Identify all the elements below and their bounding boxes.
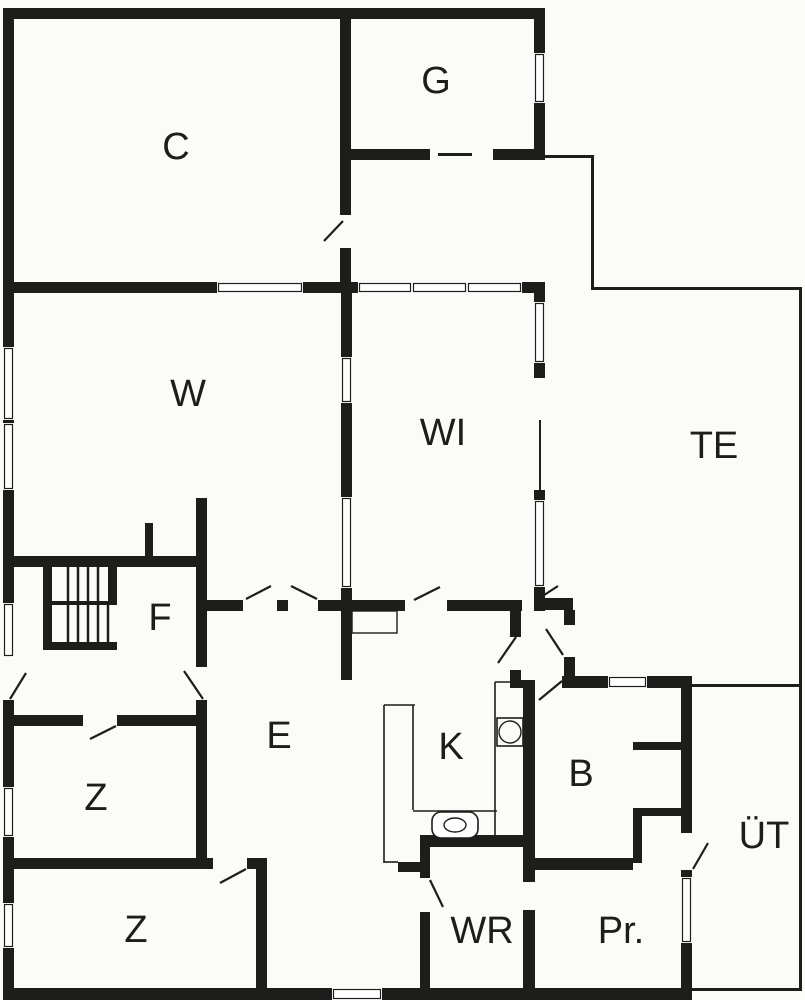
door-opening bbox=[243, 600, 277, 611]
room-label-c: C bbox=[162, 126, 189, 168]
stairs-wall bbox=[108, 565, 117, 605]
wall bbox=[398, 862, 420, 872]
stairs-wall bbox=[43, 642, 117, 650]
terrace-boundary-line bbox=[692, 684, 802, 687]
wall bbox=[564, 610, 575, 625]
door-opening bbox=[405, 600, 447, 611]
room-label-z2: Z bbox=[124, 909, 147, 951]
wall bbox=[633, 808, 642, 863]
terrace-boundary-line bbox=[545, 155, 593, 158]
room-label-k: K bbox=[438, 726, 463, 768]
wall bbox=[3, 8, 545, 19]
stairs-wall bbox=[43, 565, 52, 650]
room-label-te: TE bbox=[690, 425, 739, 467]
terrace-boundary-line bbox=[591, 155, 594, 289]
wall bbox=[681, 676, 692, 833]
room-label-ut: ÜT bbox=[739, 815, 790, 857]
terrace-boundary-line bbox=[591, 287, 802, 290]
door-opening bbox=[340, 215, 351, 248]
room-label-b: B bbox=[568, 753, 593, 795]
room-label-wr: WR bbox=[450, 910, 513, 952]
room-label-wi: WI bbox=[420, 412, 466, 454]
terrace-boundary-line bbox=[799, 287, 802, 990]
wall bbox=[3, 8, 14, 1000]
sink-icon bbox=[432, 812, 478, 838]
room-label-e: E bbox=[266, 715, 291, 757]
door-opening bbox=[288, 600, 318, 611]
floor-plan-canvas: CGWWITEFEZZKBWRPr.ÜT bbox=[0, 0, 805, 1000]
room-label-f: F bbox=[148, 597, 171, 639]
room-label-w: W bbox=[170, 373, 206, 415]
wall bbox=[510, 670, 521, 680]
wall bbox=[145, 523, 153, 556]
door-opening bbox=[213, 858, 247, 869]
terrace-boundary-line bbox=[438, 153, 472, 156]
floor-plan: CGWWITEFEZZKBWRPr.ÜT bbox=[0, 0, 805, 1000]
terrace-boundary-line bbox=[539, 420, 541, 490]
stairs-wall bbox=[52, 601, 117, 605]
door-opening bbox=[523, 882, 535, 910]
room-label-g: G bbox=[421, 60, 451, 102]
door-opening bbox=[83, 715, 117, 726]
wall bbox=[341, 282, 352, 680]
room-label-pr: Pr. bbox=[598, 910, 644, 952]
door-opening bbox=[420, 878, 430, 912]
wall bbox=[3, 556, 207, 567]
wall bbox=[537, 598, 573, 610]
wall bbox=[527, 858, 633, 870]
terrace-boundary-line bbox=[692, 988, 802, 991]
wall bbox=[420, 847, 430, 988]
wall bbox=[633, 742, 681, 750]
wall bbox=[256, 858, 267, 1000]
room-label-z1: Z bbox=[84, 777, 107, 819]
wall bbox=[510, 608, 521, 637]
